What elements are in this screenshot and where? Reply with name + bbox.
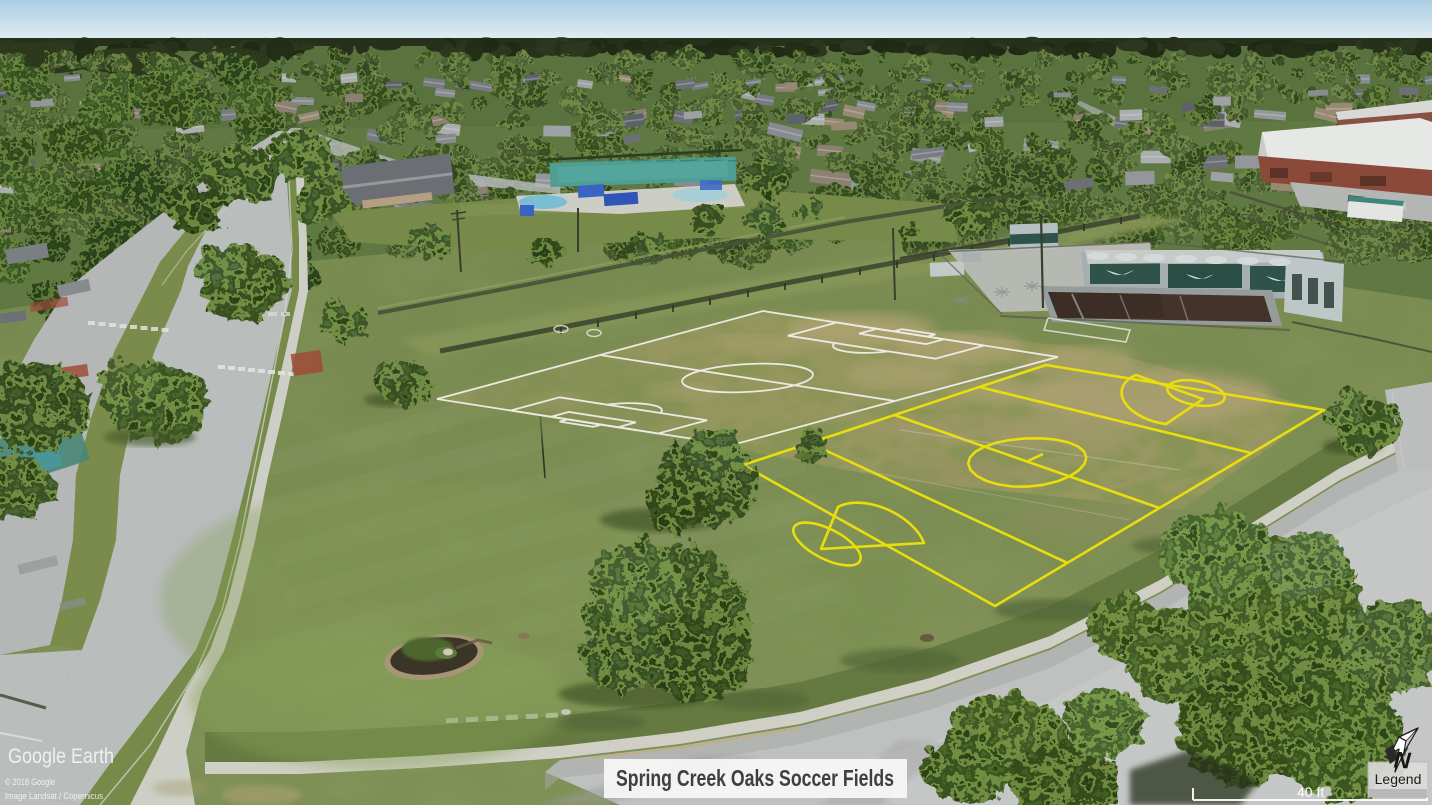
svg-text:Legend: Legend	[1375, 771, 1422, 787]
svg-text:© 2018 Google: © 2018 Google	[5, 777, 55, 787]
svg-text:Spring Creek Oaks Soccer Field: Spring Creek Oaks Soccer Fields	[616, 765, 894, 791]
svg-text:Image Landsat / Copernicus: Image Landsat / Copernicus	[5, 791, 103, 801]
svg-text:40 ft: 40 ft	[1297, 784, 1324, 800]
svg-text:Google Earth: Google Earth	[8, 745, 114, 768]
svg-text:N: N	[1393, 746, 1412, 773]
